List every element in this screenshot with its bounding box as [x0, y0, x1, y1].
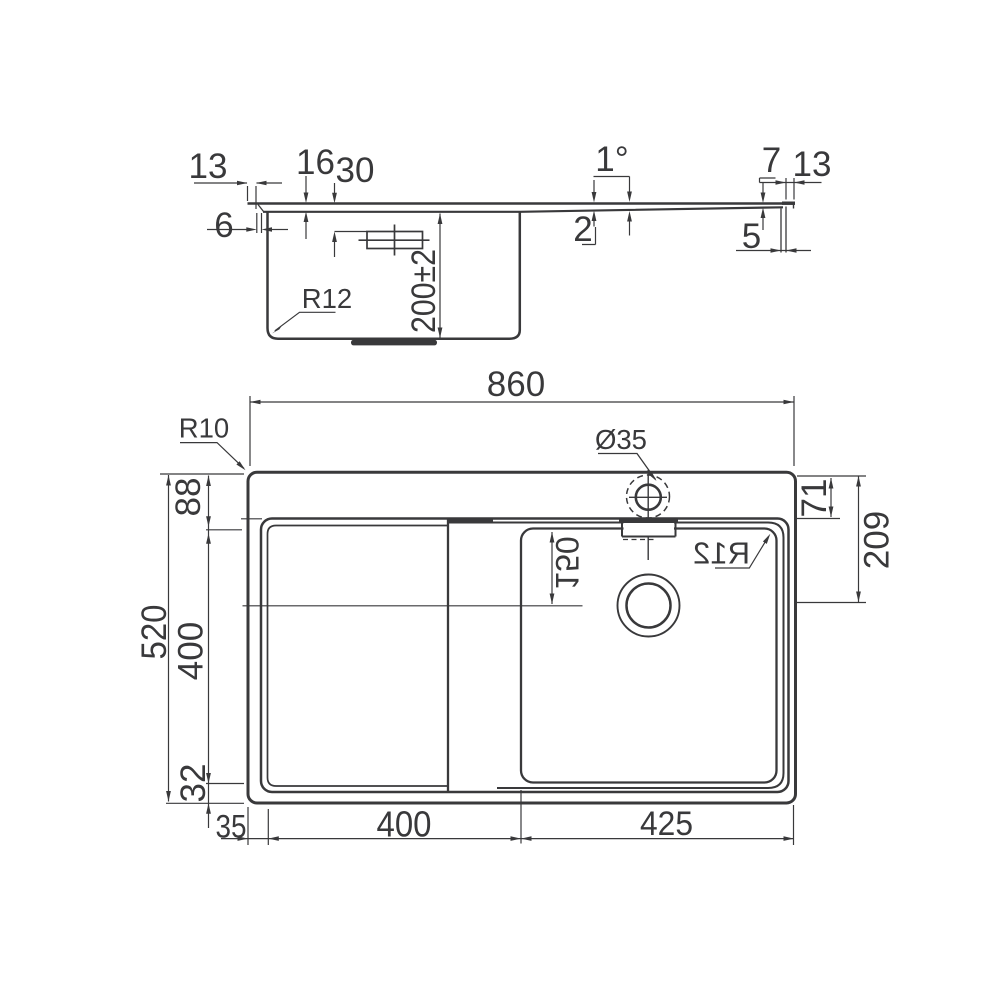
svg-text:32: 32	[174, 764, 213, 803]
svg-text:425: 425	[640, 805, 693, 843]
svg-text:Ø35: Ø35	[595, 424, 647, 455]
svg-text:5: 5	[742, 217, 761, 256]
svg-text:209: 209	[858, 511, 897, 569]
svg-text:16: 16	[296, 143, 335, 182]
svg-text:6: 6	[214, 206, 233, 245]
svg-text:400: 400	[377, 804, 432, 845]
svg-text:R12: R12	[693, 536, 750, 571]
svg-text:150: 150	[549, 536, 585, 589]
svg-text:13: 13	[189, 147, 228, 186]
svg-text:520: 520	[135, 605, 174, 660]
svg-text:71: 71	[795, 479, 834, 518]
svg-text:200±2: 200±2	[405, 249, 443, 333]
svg-text:2: 2	[573, 210, 592, 249]
svg-text:400: 400	[172, 622, 211, 680]
svg-text:R10: R10	[179, 413, 229, 444]
svg-text:13: 13	[793, 145, 832, 184]
svg-text:30: 30	[336, 151, 375, 190]
svg-text:7: 7	[762, 141, 781, 180]
svg-text:35: 35	[216, 809, 247, 845]
svg-text:1°: 1°	[595, 140, 628, 179]
svg-text:860: 860	[487, 365, 545, 404]
svg-text:88: 88	[169, 478, 208, 517]
svg-text:R12: R12	[302, 283, 352, 314]
